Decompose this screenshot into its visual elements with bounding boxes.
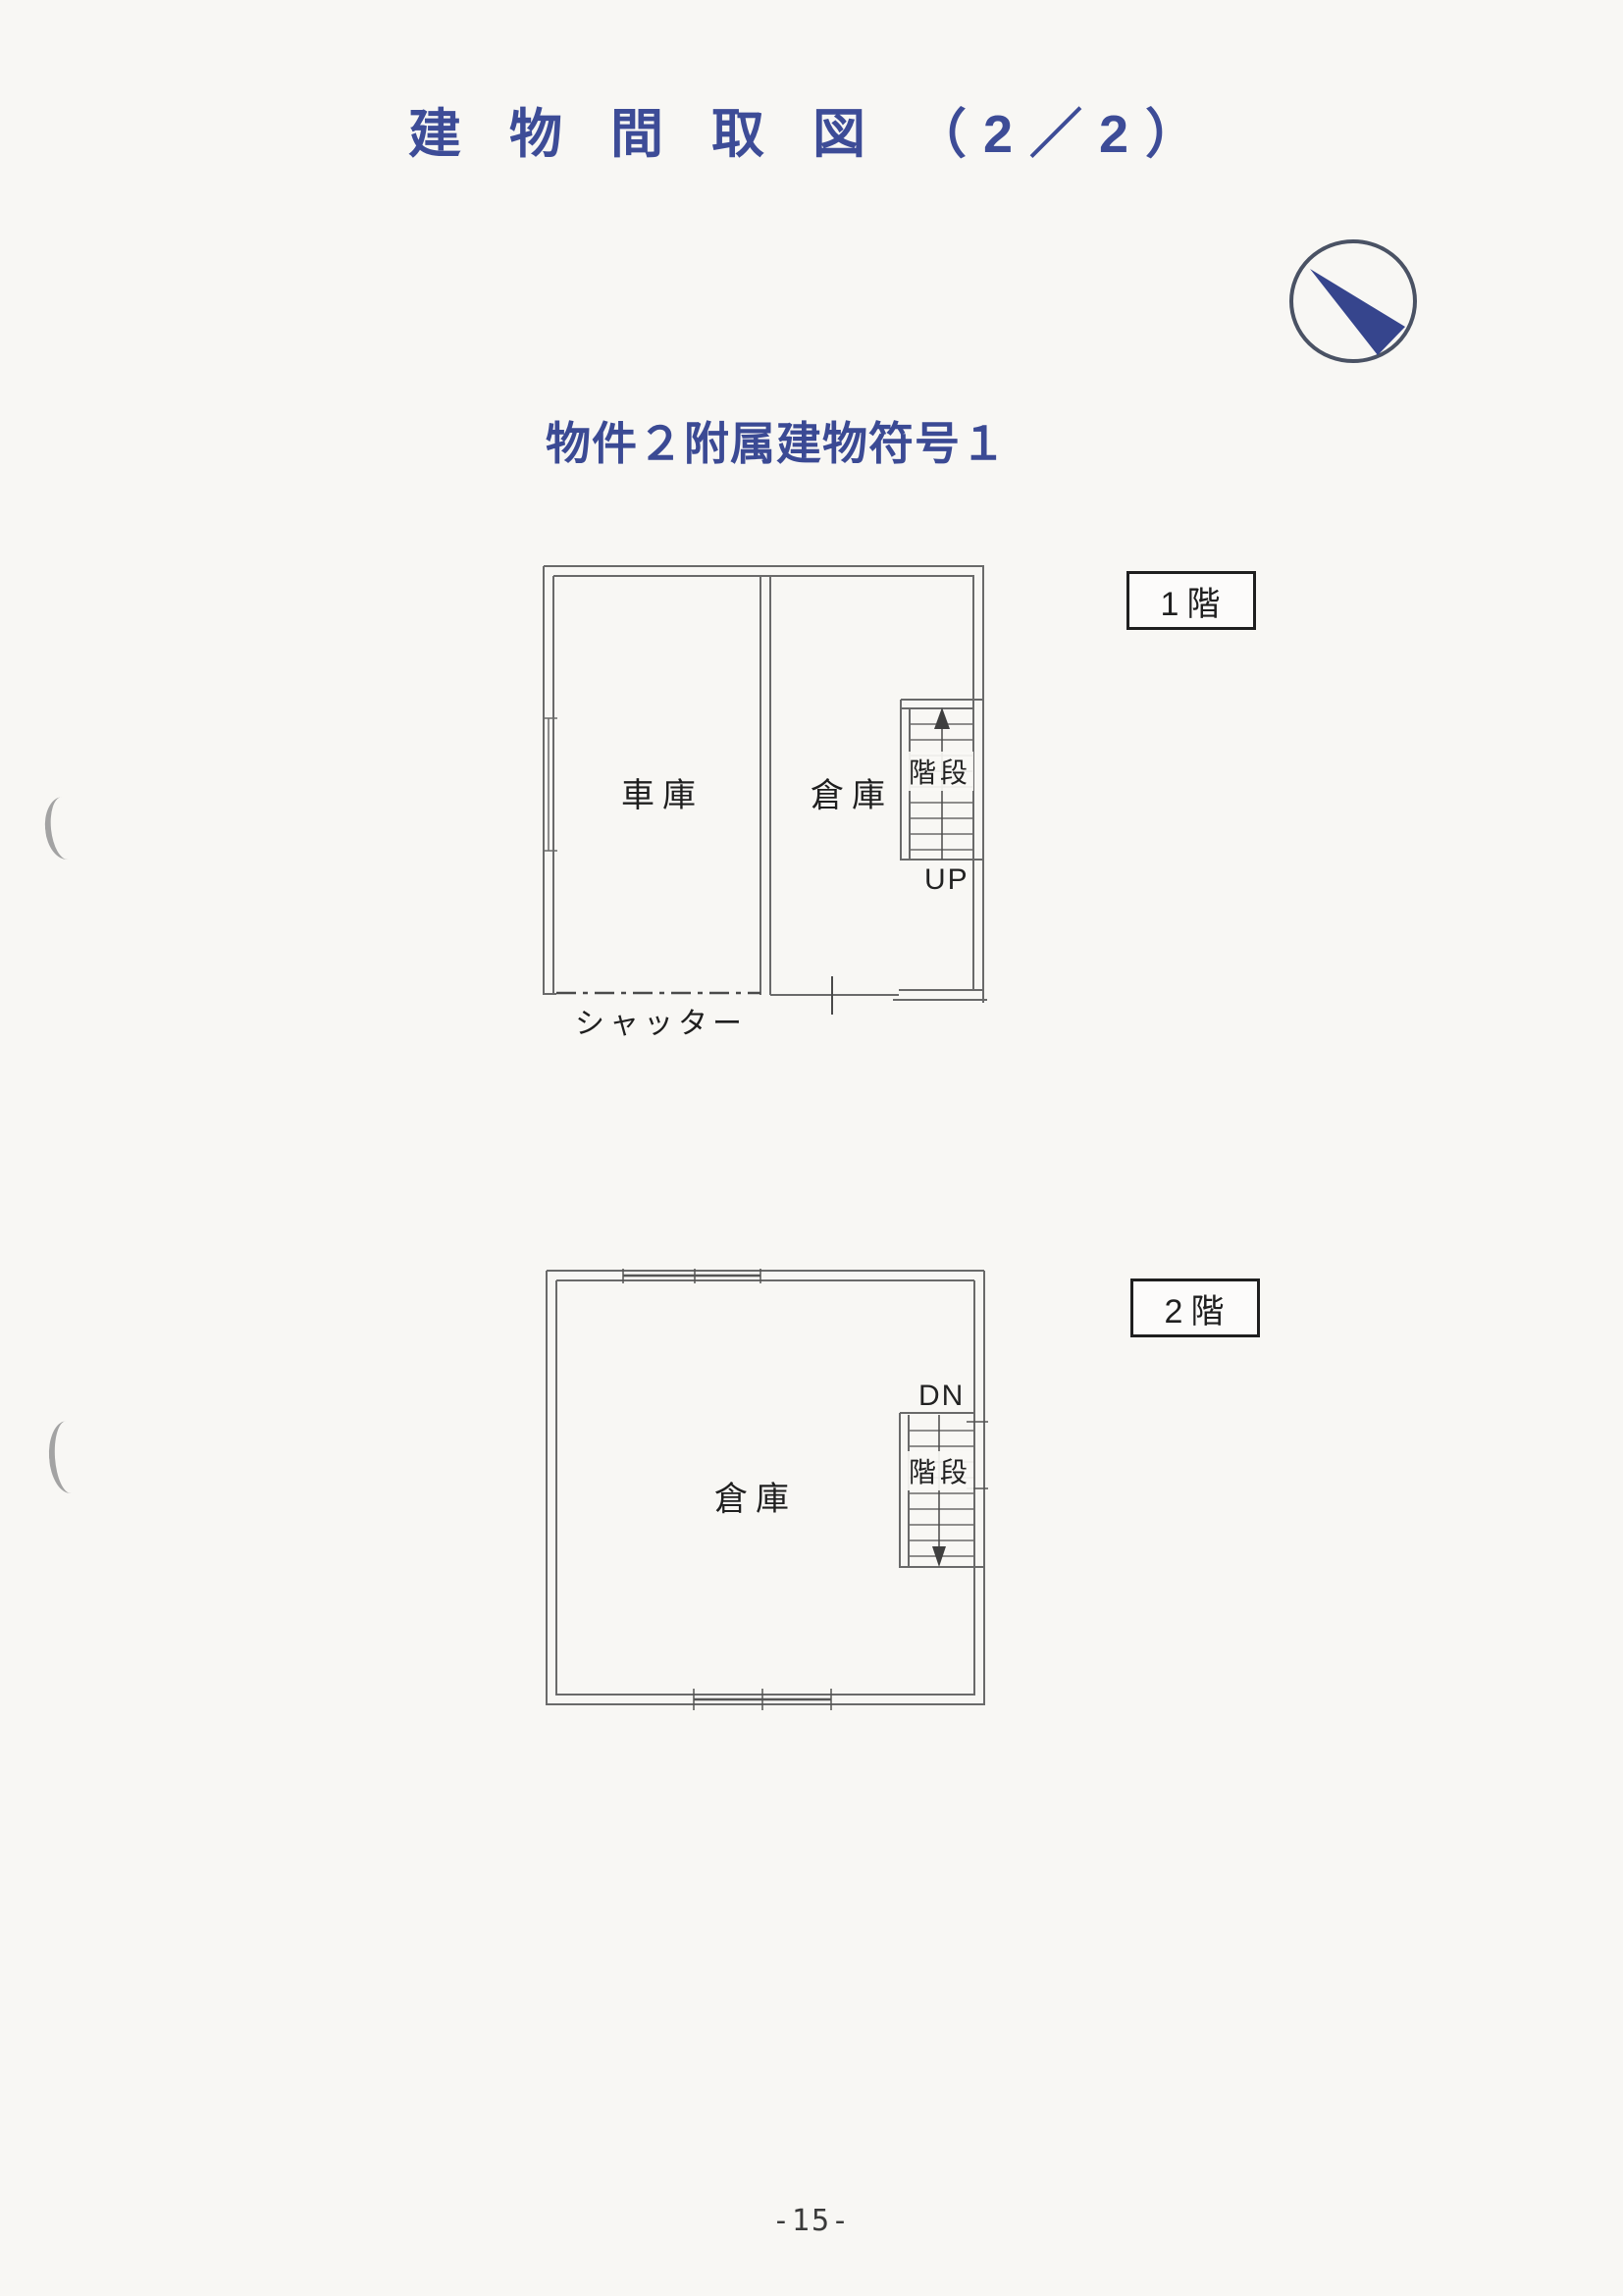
floor2-bottom-window — [694, 1689, 831, 1710]
page-number: -15- — [0, 2204, 1623, 2238]
floor2-plan: 倉庫 階段 DN — [545, 1269, 986, 1707]
warehouse-room-label: 倉庫 — [788, 768, 916, 816]
floor2-stair-treads — [909, 1431, 974, 1556]
floor2-badge: 2階 — [1130, 1278, 1260, 1337]
floor1-stairs-label: 階段 — [907, 752, 973, 791]
floor1-plan: 車庫 倉庫 階段 UP — [543, 565, 989, 1002]
floor1-up-label: UP — [924, 863, 969, 897]
page-title: 建 物 間 取 図 （2／2） — [0, 90, 1623, 168]
garage-room-label: 車庫 — [599, 768, 726, 816]
floor2-dn-label: DN — [918, 1380, 965, 1413]
north-arrow-icon — [1286, 236, 1420, 366]
floor2-badge-text: 2階 — [1165, 1284, 1232, 1332]
property-subtitle: 物件２附属建物符号１ — [546, 408, 1007, 473]
floor2-warehouse-room-label: 倉庫 — [687, 1472, 824, 1520]
up-arrow-icon — [934, 707, 950, 729]
punch-hole-mark — [42, 795, 87, 861]
floor1-badge-text: 1階 — [1161, 577, 1229, 625]
floor1-badge: 1階 — [1126, 571, 1256, 630]
floor2-stairs-label: 階段 — [907, 1451, 973, 1490]
punch-hole-mark — [46, 1420, 90, 1495]
shutter-caption: シャッター — [575, 999, 747, 1042]
